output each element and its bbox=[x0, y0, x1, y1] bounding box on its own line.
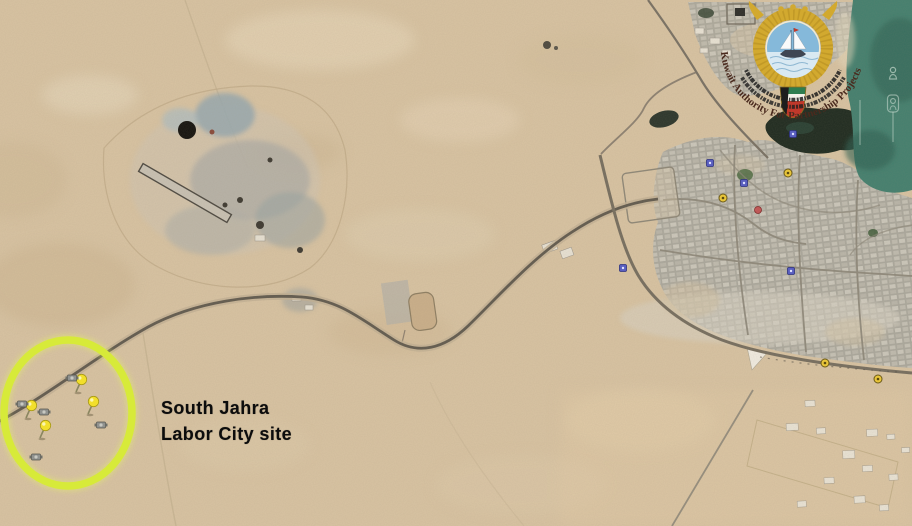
poi-blue-icon[interactable] bbox=[707, 160, 714, 167]
equipment-icon[interactable] bbox=[38, 409, 51, 415]
poi-yellow-icon[interactable] bbox=[784, 169, 792, 177]
poi-yellow-icon[interactable] bbox=[874, 375, 882, 383]
poi-red-icon[interactable] bbox=[755, 207, 762, 214]
equipment-icon[interactable] bbox=[30, 454, 43, 460]
poi-blue-icon[interactable] bbox=[790, 131, 797, 138]
site-label: South Jahra Labor City site bbox=[161, 395, 292, 447]
equipment-icon[interactable] bbox=[95, 422, 108, 428]
poi-blue-icon[interactable] bbox=[620, 265, 627, 272]
poi-yellow-icon[interactable] bbox=[719, 194, 727, 202]
kuwait-emblem-icon bbox=[749, 1, 837, 82]
site-label-line1: South Jahra bbox=[161, 395, 292, 421]
satellite-map-canvas[interactable]: Kuwait Authority For Partnership Project… bbox=[0, 0, 912, 526]
poi-blue-icon[interactable] bbox=[741, 180, 748, 187]
poi-blue-icon[interactable] bbox=[788, 268, 795, 275]
equipment-icon[interactable] bbox=[66, 375, 79, 381]
equipment-icon[interactable] bbox=[16, 401, 29, 407]
poi-yellow-icon[interactable] bbox=[821, 359, 829, 367]
site-label-line2: Labor City site bbox=[161, 421, 292, 447]
map-scene: Kuwait Authority For Partnership Project… bbox=[0, 0, 912, 526]
